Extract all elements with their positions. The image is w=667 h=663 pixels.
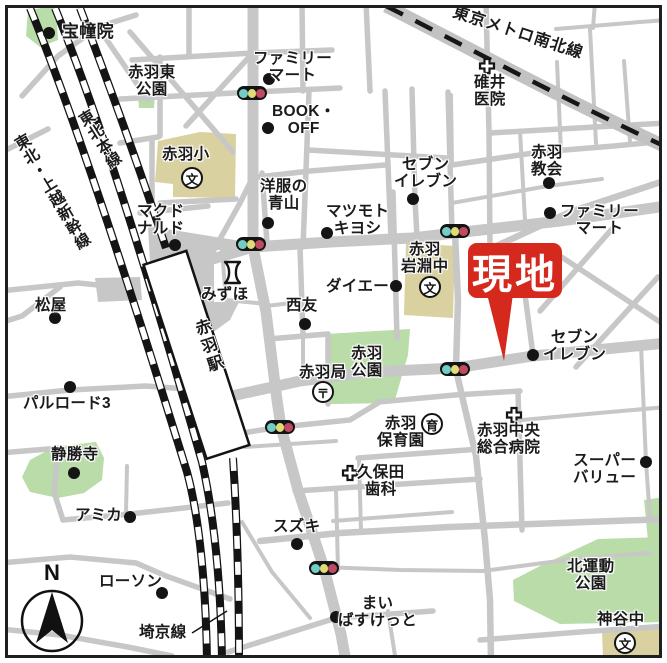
place-label-usui-clinic: 碓井 医院: [474, 74, 506, 109]
traffic-signal-icon: [309, 561, 339, 575]
place-label-kubota-dental: 久保田 歯科: [357, 464, 404, 499]
place-label-book-off: BOOK・ OFF: [272, 103, 336, 138]
place-label-joshoji: 静勝寺: [51, 446, 98, 463]
railway-label-saikyo: 埼京線: [139, 624, 186, 641]
amica-dot: [124, 511, 136, 523]
target-pointer-tail: [487, 294, 513, 361]
traffic-signal-icon: [440, 224, 470, 238]
compass: N: [16, 562, 88, 659]
place-label-matsumoto-kiyoshi: マツモト キヨシ: [326, 203, 389, 238]
place-label-akabane-church: 赤羽 教会: [531, 144, 563, 179]
place-label-daiei: ダイエー: [326, 278, 389, 295]
place-label-suzuki: スズキ: [273, 518, 320, 535]
place-label-mizuho: みずほ: [201, 286, 248, 303]
traffic-signal-icon: [237, 86, 267, 100]
joshoji-dot: [68, 467, 80, 479]
school-icon: 文: [614, 632, 636, 654]
place-label-kita-undo-park: 北運動 公園: [567, 558, 614, 593]
palroad3-dot: [64, 381, 76, 393]
school-icon: 文: [181, 167, 203, 189]
place-label-seven-eleven-north: セブン イレブン: [394, 156, 457, 191]
seiyu-dot: [299, 318, 311, 330]
place-label-seven-eleven-east: セブン イレブン: [543, 329, 606, 364]
suzuki-dot: [291, 538, 303, 550]
place-label-familymart-north: ファミリー マート: [253, 50, 332, 85]
place-label-seiyu: 西友: [286, 297, 318, 314]
seven-eleven-north-dot: [407, 193, 419, 205]
akabane-church-dot: [543, 177, 555, 189]
houdouin-dot: [43, 27, 55, 39]
place-label-amica: アミカ: [75, 507, 122, 524]
place-label-akabane-iwabuchi-jhs: 赤羽 岩淵中: [401, 241, 448, 276]
traffic-signal-icon: [440, 362, 470, 376]
place-label-lawson: ローソン: [99, 573, 162, 590]
place-label-matsuya: 松屋: [35, 297, 67, 314]
super-value-dot: [640, 456, 652, 468]
place-label-akabane-chuo-hospital: 赤羽中央 総合病院: [477, 422, 540, 457]
daiei-dot: [390, 280, 402, 292]
traffic-signal-icon: [236, 237, 266, 251]
school-icon: 文: [419, 276, 441, 298]
yofuku-no-aoyama-dot: [262, 217, 274, 229]
place-label-my-basket: まい ばすけっと: [338, 595, 417, 630]
place-label-akabane-park: 赤羽 公園: [351, 345, 383, 380]
place-label-akabane-higashi-park: 赤羽東 公園: [128, 64, 175, 99]
compass-north-label: N: [16, 562, 88, 584]
compass-rose-icon: [17, 584, 87, 654]
familymart-east-dot: [544, 207, 556, 219]
place-label-super-value: スーパー バリュー: [573, 452, 636, 487]
hospital-cross-icon: [478, 57, 496, 75]
place-label-yofuku-no-aoyama: 洋服の 青山: [260, 178, 307, 213]
place-label-kamiya-jhs: 神谷中: [597, 611, 644, 628]
place-label-akabane-elementary: 赤羽小: [162, 146, 209, 163]
target-location-callout: 現地: [468, 243, 562, 298]
place-label-houdouin: 宝幢院: [62, 22, 114, 41]
post-office-icon: 〒: [312, 381, 334, 403]
place-label-mcdonalds: マクド ナルド: [137, 203, 184, 238]
location-map: 宝幢院 赤羽東 公園 ファミリー マート BOOK・ OFF 碓井 医院 赤羽小…: [0, 0, 667, 663]
traffic-signal-icon: [265, 420, 295, 434]
place-label-akabane-nursery: 赤羽 保育園: [377, 415, 424, 450]
place-label-akabane-post-office: 赤羽局: [299, 364, 346, 381]
place-label-familymart-east: ファミリー マート: [560, 203, 639, 238]
place-label-palroad3: パルロード3: [23, 395, 111, 412]
mcdonalds-dot: [169, 239, 181, 251]
seven-eleven-east-dot: [527, 349, 539, 361]
